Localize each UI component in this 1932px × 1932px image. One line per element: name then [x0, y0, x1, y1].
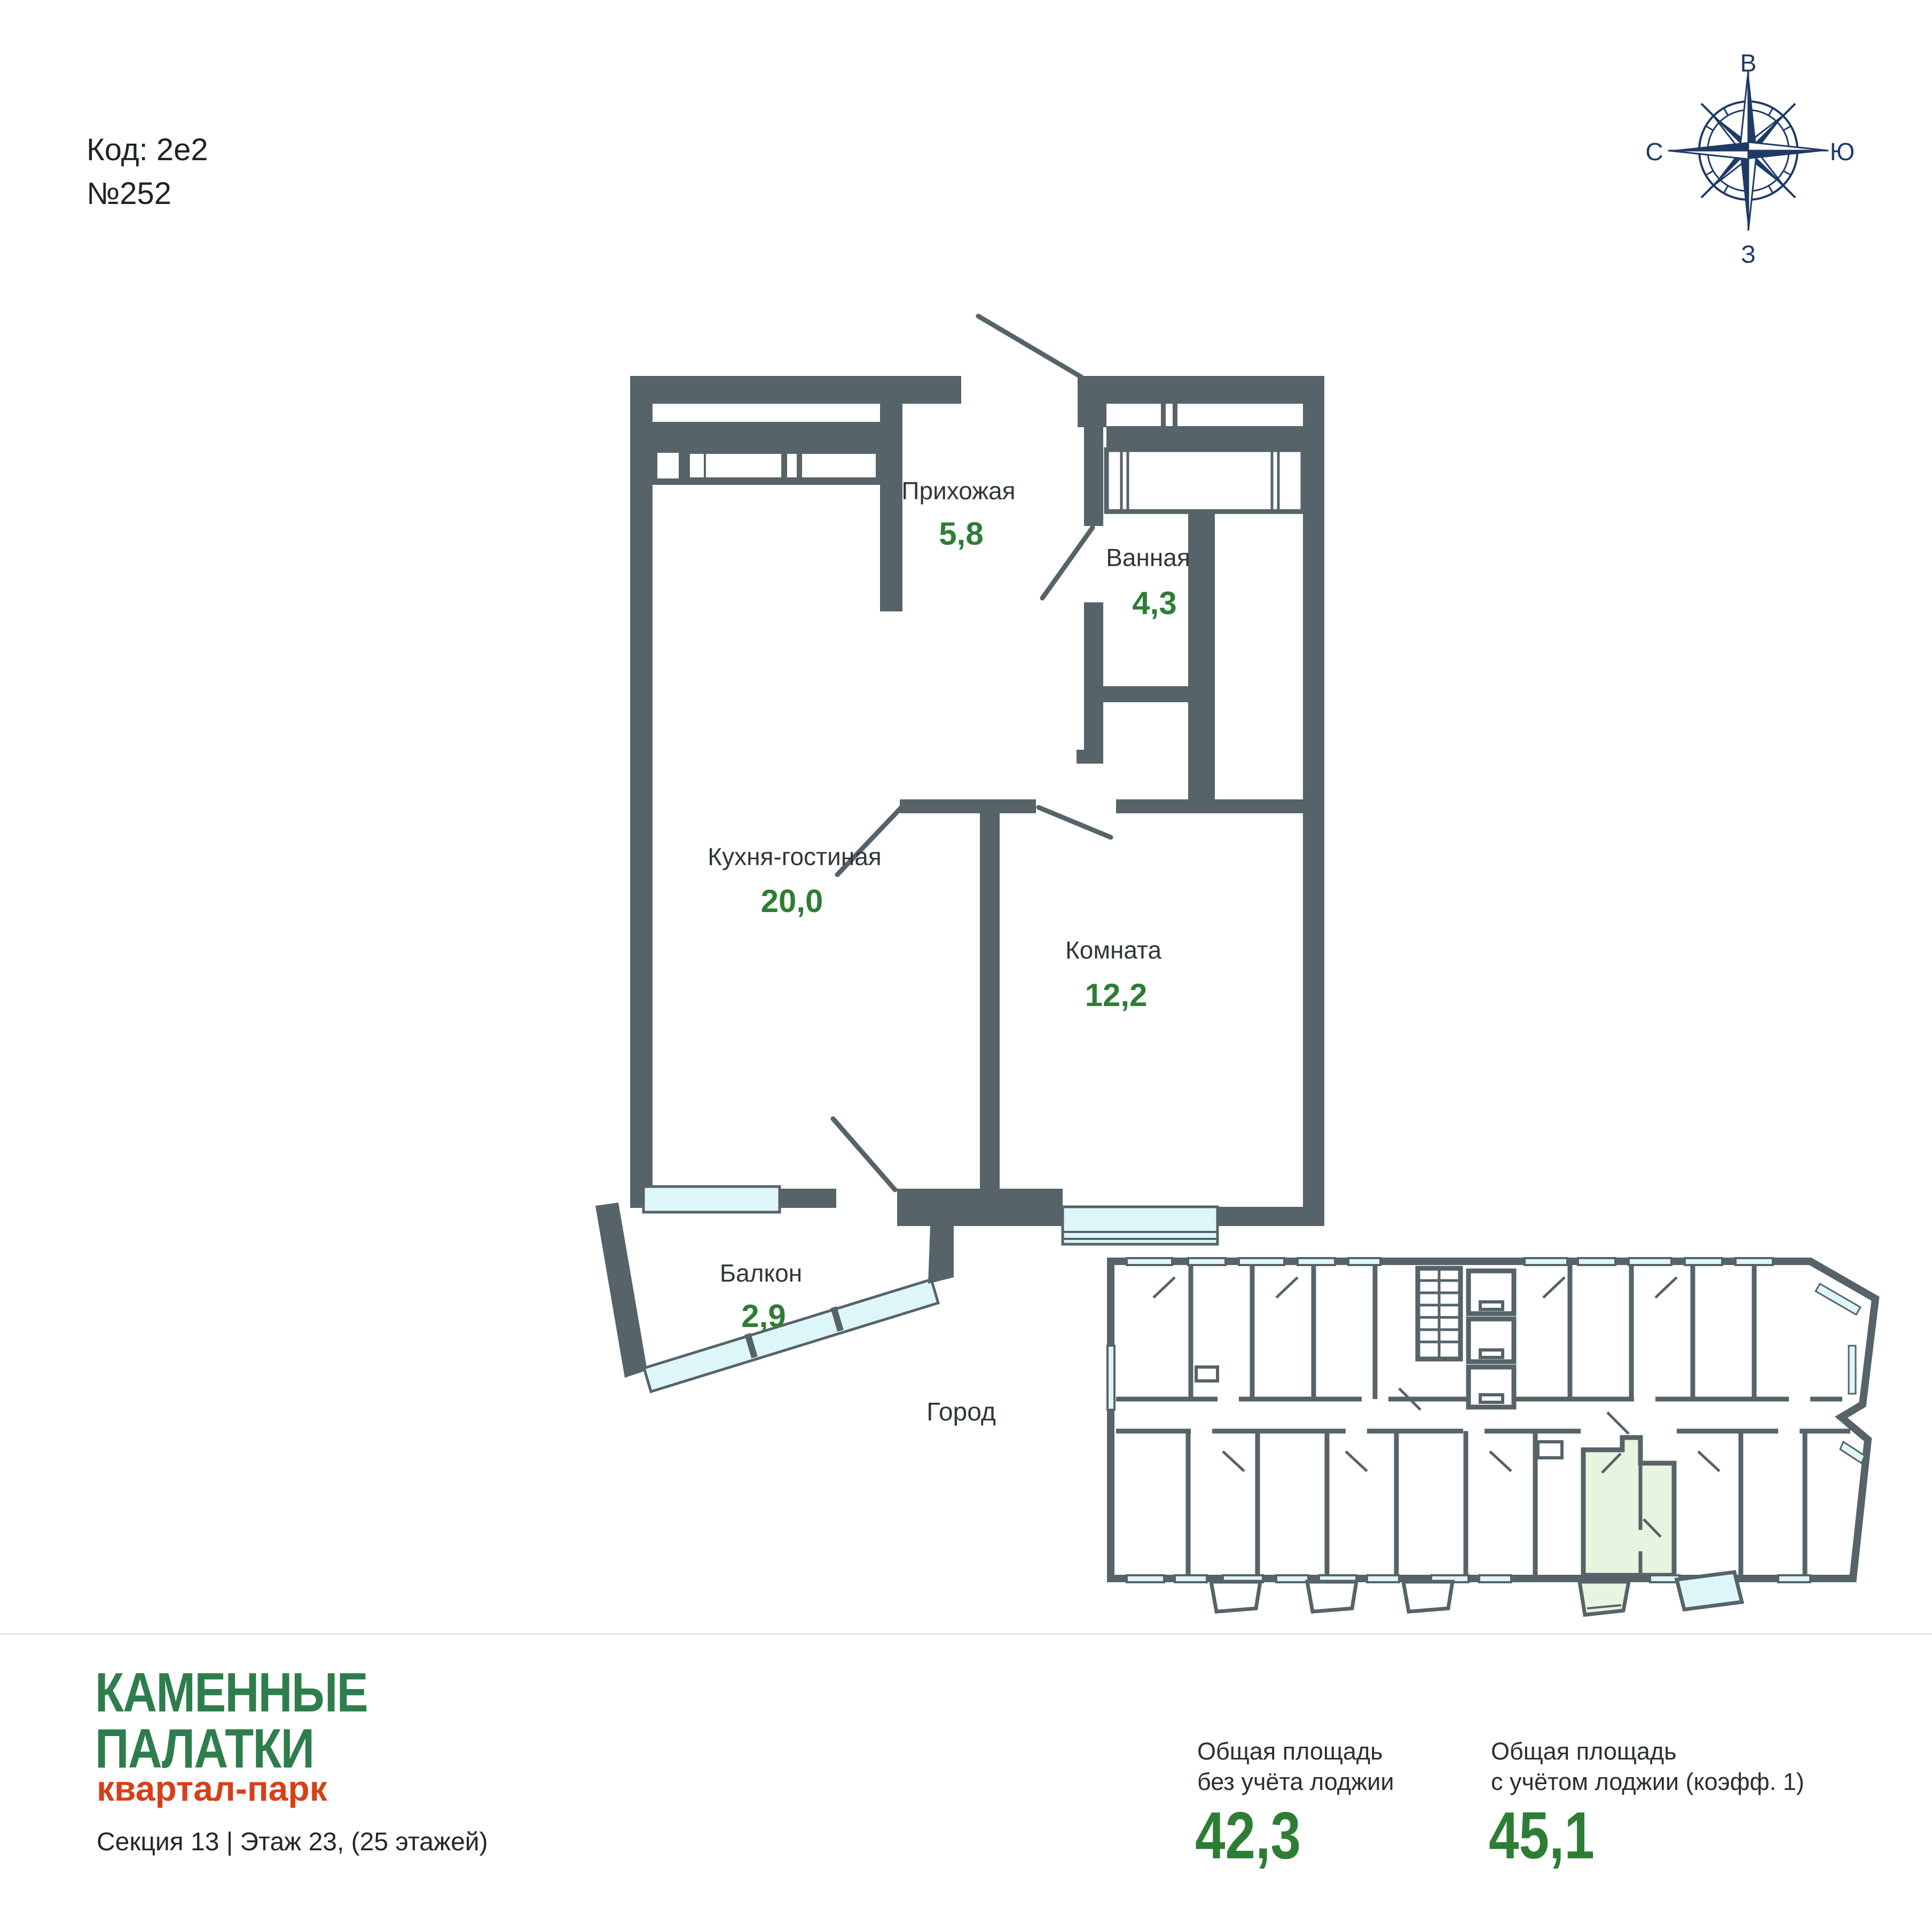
apartment-code: Код: 2е2: [87, 132, 208, 167]
highlighted-unit-balcony: [1580, 1582, 1629, 1615]
compass-north-label: С: [1645, 138, 1663, 166]
room-label-balcony: Балкон: [720, 1259, 802, 1287]
kitchen-window: [643, 1187, 780, 1212]
compass-south-label: Ю: [1830, 138, 1855, 166]
section-floor-info: Секция 13 | Этаж 23, (25 этажей): [97, 1828, 488, 1856]
floorplan-page: Код: 2е2 №252: [0, 0, 1932, 1932]
mini-floorplan: [1108, 1258, 1875, 1615]
room-label-hallway: Прихожая: [901, 477, 1015, 505]
stat1-value: 42,3: [1195, 1799, 1301, 1873]
stat1-label-line2: без учёта лоджии: [1197, 1768, 1394, 1795]
room-area-kitchen: 20,0: [761, 883, 823, 919]
stat2-label-line2: с учётом лоджии (коэфф. 1): [1491, 1768, 1804, 1795]
wardrobe-insets: [657, 453, 876, 478]
city-label: Город: [926, 1398, 996, 1426]
stat2-value: 45,1: [1489, 1799, 1595, 1873]
room-window: [1063, 1207, 1218, 1244]
room-label-bathroom: Ванная: [1106, 544, 1190, 571]
room-area-balcony: 2,9: [741, 1298, 786, 1334]
brand-subtitle: квартал-парк: [97, 1769, 328, 1808]
compass-west-label: З: [1741, 240, 1756, 268]
room-area-room: 12,2: [1085, 977, 1148, 1013]
vent-shaft: [1106, 450, 1303, 512]
brand-line1: КАМЕННЫЕ: [95, 1662, 367, 1723]
apartment-number: №252: [87, 176, 171, 211]
stat2-label-line1: Общая площадь: [1491, 1738, 1677, 1765]
room-area-bathroom: 4,3: [1132, 585, 1176, 621]
room-area-hallway: 5,8: [939, 516, 983, 552]
stat1-label-line1: Общая площадь: [1197, 1738, 1383, 1765]
room-label-room: Комната: [1065, 936, 1162, 964]
room-label-kitchen: Кухня-гостиная: [708, 843, 881, 870]
compass-east-label: В: [1740, 49, 1757, 77]
page-background: [0, 0, 1932, 1932]
